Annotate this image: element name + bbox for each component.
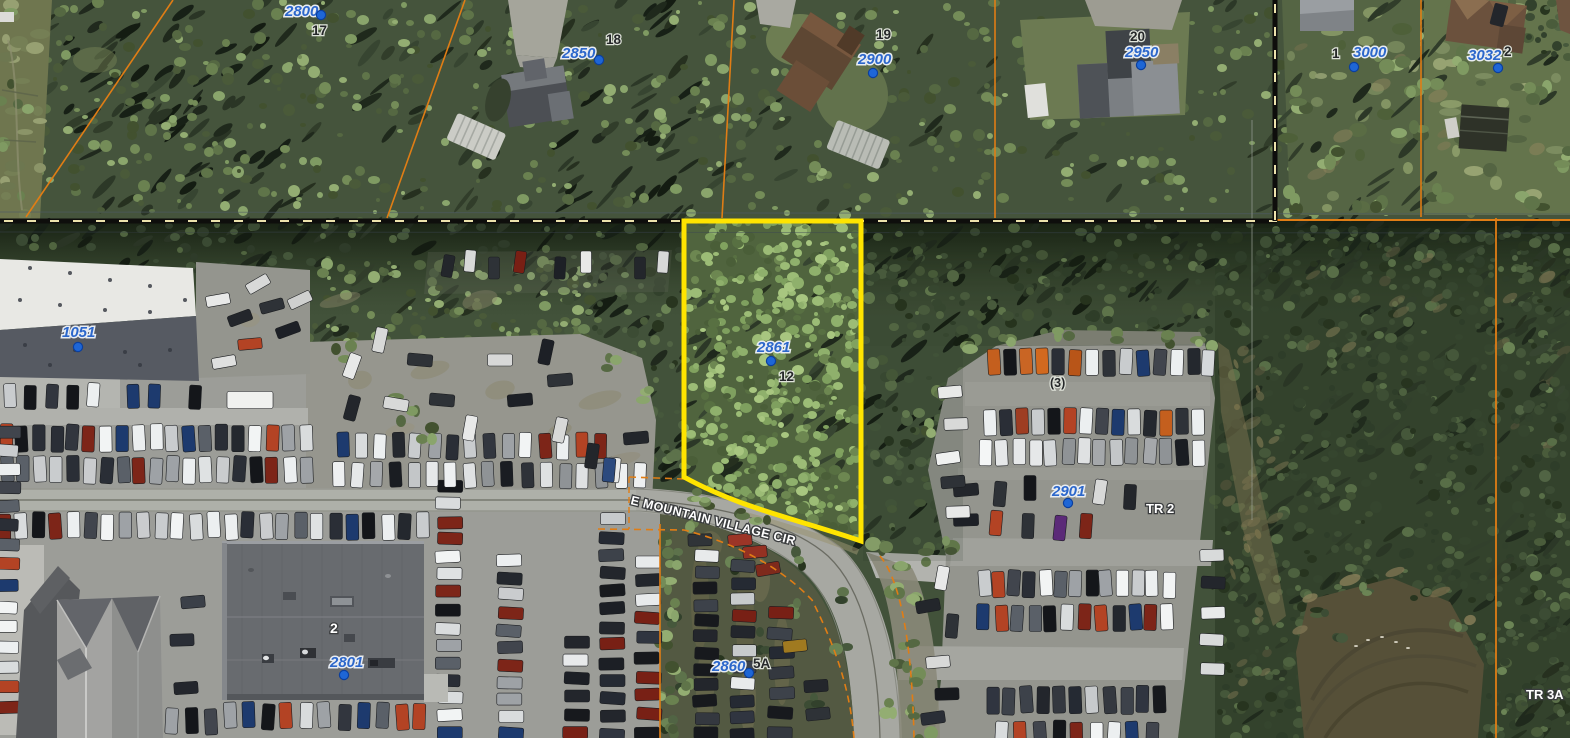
svg-text:2801: 2801: [329, 654, 363, 671]
svg-text:17: 17: [312, 23, 327, 38]
svg-text:2: 2: [330, 620, 338, 636]
svg-text:2: 2: [1504, 44, 1512, 59]
svg-text:12: 12: [779, 369, 794, 384]
svg-text:2900: 2900: [857, 51, 892, 68]
svg-text:TR 3A: TR 3A: [1526, 687, 1564, 702]
svg-text:(3): (3): [1050, 376, 1065, 390]
svg-text:2850: 2850: [561, 45, 596, 62]
svg-text:2901: 2901: [1051, 483, 1085, 500]
svg-text:18: 18: [606, 32, 622, 47]
svg-text:3000: 3000: [1353, 44, 1387, 61]
svg-text:2800: 2800: [284, 3, 319, 20]
svg-text:2861: 2861: [756, 339, 790, 356]
svg-text:19: 19: [876, 27, 891, 42]
svg-text:TR 2: TR 2: [1146, 501, 1174, 516]
svg-text:20: 20: [1130, 29, 1145, 44]
svg-text:2950: 2950: [1124, 44, 1159, 61]
svg-text:5A: 5A: [753, 656, 771, 671]
svg-text:3032: 3032: [1468, 47, 1502, 64]
svg-text:2860: 2860: [711, 658, 746, 675]
svg-text:1: 1: [1332, 46, 1340, 61]
svg-text:1051: 1051: [62, 324, 95, 341]
